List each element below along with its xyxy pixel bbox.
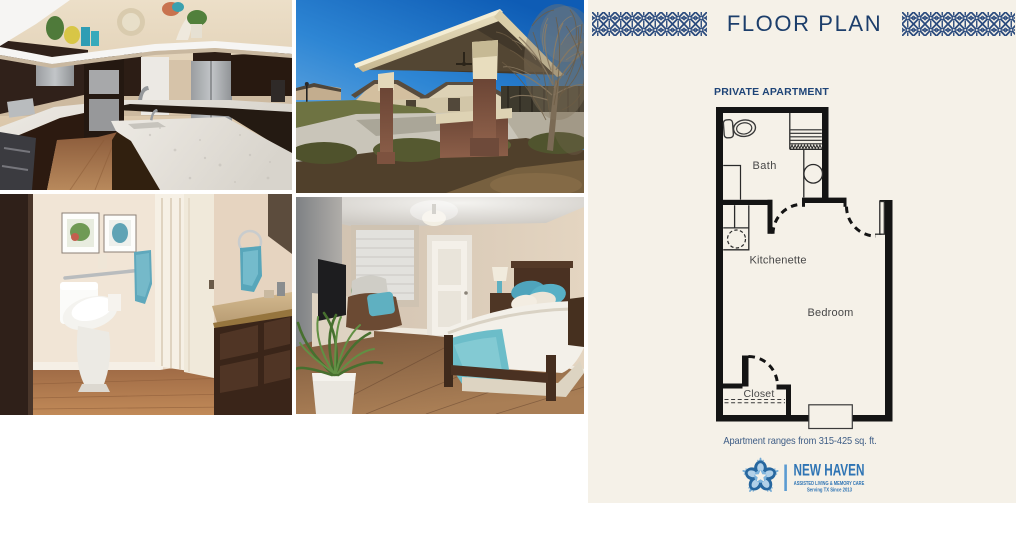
- svg-text:Serving TX Since 2013: Serving TX Since 2013: [807, 487, 852, 493]
- svg-text:Closet: Closet: [744, 388, 775, 400]
- svg-text:Bath: Bath: [753, 160, 777, 172]
- svg-text:Kitchenette: Kitchenette: [750, 255, 807, 267]
- svg-text:NEW HAVEN: NEW HAVEN: [794, 462, 865, 480]
- svg-text:Bedroom: Bedroom: [808, 307, 854, 319]
- svg-text:ASSISTED LIVING & MEMORY CARE: ASSISTED LIVING & MEMORY CARE: [794, 481, 865, 487]
